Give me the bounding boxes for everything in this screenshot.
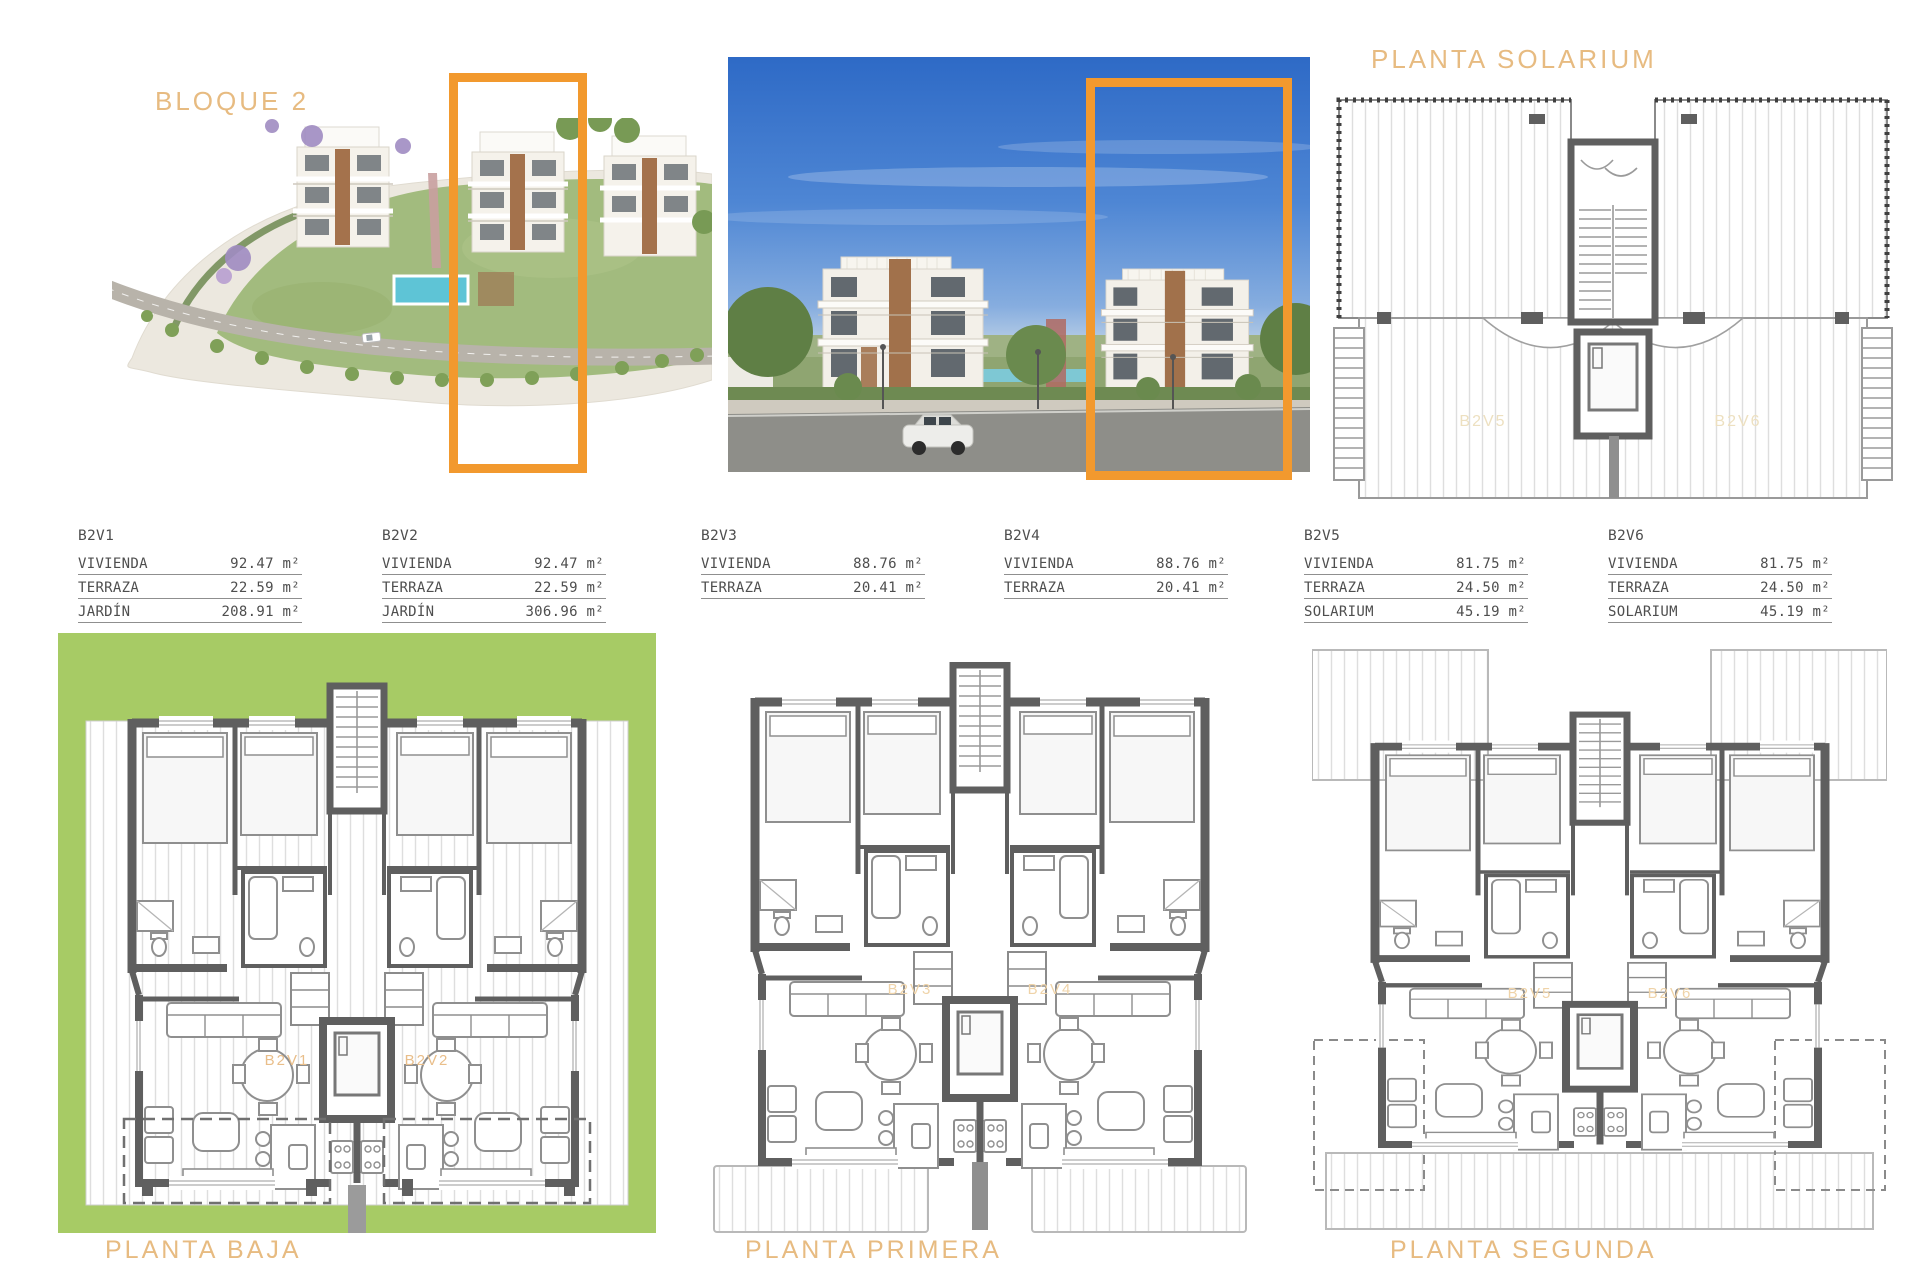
baja-caption: PLANTA BAJA <box>105 1236 302 1265</box>
solarium-unit-left-label: B2V5 <box>1459 413 1506 430</box>
spec-label: SOLARIUM <box>1304 604 1374 620</box>
unit-name: B2V6 <box>1608 528 1832 548</box>
spec-label: SOLARIUM <box>1608 604 1678 620</box>
spec-value: 81.75 m² <box>1760 556 1830 572</box>
street-highlight-box <box>1086 78 1292 480</box>
spec-value: 88.76 m² <box>1156 556 1226 572</box>
spec-label: JARDÍN <box>78 604 130 620</box>
unit-spec-b2v4: B2V4 VIVIENDA88.76 m² TERRAZA20.41 m² <box>1004 528 1228 599</box>
spec-label: JARDÍN <box>382 604 434 620</box>
segunda-unit-left-label: B2V5 <box>1508 985 1553 1002</box>
spec-value: 208.91 m² <box>221 604 300 620</box>
solarium-unit-right-label: B2V6 <box>1714 413 1761 430</box>
unit-spec-b2v6: B2V6 VIVIENDA81.75 m² TERRAZA24.50 m² SO… <box>1608 528 1832 623</box>
plan-solarium: B2V5 B2V6 <box>1333 90 1893 510</box>
unit-spec-b2v1: B2V1 VIVIENDA92.47 m² TERRAZA22.59 m² JA… <box>78 528 302 623</box>
unit-spec-b2v5: B2V5 VIVIENDA81.75 m² TERRAZA24.50 m² SO… <box>1304 528 1528 623</box>
spec-value: 22.59 m² <box>534 580 604 596</box>
plan-segunda: B2V5 B2V6 <box>1312 648 1887 1233</box>
unit-spec-b2v3: B2V3 VIVIENDA88.76 m² TERRAZA20.41 m² <box>701 528 925 599</box>
primera-unit-right-label: B2V4 <box>1028 981 1073 998</box>
plan-baja: B2V1 B2V2 <box>58 633 656 1233</box>
spec-value: 92.47 m² <box>230 556 300 572</box>
primera-unit-left-label: B2V3 <box>888 981 933 998</box>
spec-label: VIVIENDA <box>382 556 452 572</box>
spec-value: 45.19 m² <box>1760 604 1830 620</box>
spec-value: 306.96 m² <box>525 604 604 620</box>
spec-label: VIVIENDA <box>1304 556 1374 572</box>
spec-value: 88.76 m² <box>853 556 923 572</box>
spec-value: 81.75 m² <box>1456 556 1526 572</box>
spec-label: VIVIENDA <box>1608 556 1678 572</box>
spec-value: 24.50 m² <box>1456 580 1526 596</box>
plan-primera: B2V3 B2V4 <box>700 662 1260 1237</box>
aerial-highlight-box <box>449 73 587 473</box>
solarium-title: PLANTA SOLARIUM <box>1371 44 1657 75</box>
spec-value: 20.41 m² <box>853 580 923 596</box>
spec-label: VIVIENDA <box>701 556 771 572</box>
car-aerial <box>362 332 381 343</box>
spec-label: VIVIENDA <box>1004 556 1074 572</box>
spec-label: TERRAZA <box>78 580 139 596</box>
spec-value: 22.59 m² <box>230 580 300 596</box>
spec-label: VIVIENDA <box>78 556 148 572</box>
primera-caption: PLANTA PRIMERA <box>745 1236 1002 1265</box>
spec-value: 20.41 m² <box>1156 580 1226 596</box>
unit-spec-b2v2: B2V2 VIVIENDA92.47 m² TERRAZA22.59 m² JA… <box>382 528 606 623</box>
spec-label: TERRAZA <box>382 580 443 596</box>
baja-unit-left-label: B2V1 <box>265 1052 310 1069</box>
aerial-render <box>112 118 712 483</box>
spec-value: 24.50 m² <box>1760 580 1830 596</box>
spec-label: TERRAZA <box>1608 580 1669 596</box>
spec-label: TERRAZA <box>701 580 762 596</box>
spec-label: TERRAZA <box>1304 580 1365 596</box>
baja-unit-right-label: B2V2 <box>405 1052 450 1069</box>
unit-name: B2V1 <box>78 528 302 548</box>
unit-name: B2V5 <box>1304 528 1528 548</box>
spec-value: 45.19 m² <box>1456 604 1526 620</box>
block-title: BLOQUE 2 <box>155 86 309 117</box>
segunda-unit-right-label: B2V6 <box>1648 985 1693 1002</box>
spec-value: 92.47 m² <box>534 556 604 572</box>
spec-label: TERRAZA <box>1004 580 1065 596</box>
unit-name: B2V4 <box>1004 528 1228 548</box>
brochure-page: BLOQUE 2 <box>0 0 1920 1280</box>
unit-name: B2V3 <box>701 528 925 548</box>
unit-name: B2V2 <box>382 528 606 548</box>
street-building-left <box>818 257 988 389</box>
segunda-caption: PLANTA SEGUNDA <box>1390 1236 1657 1265</box>
